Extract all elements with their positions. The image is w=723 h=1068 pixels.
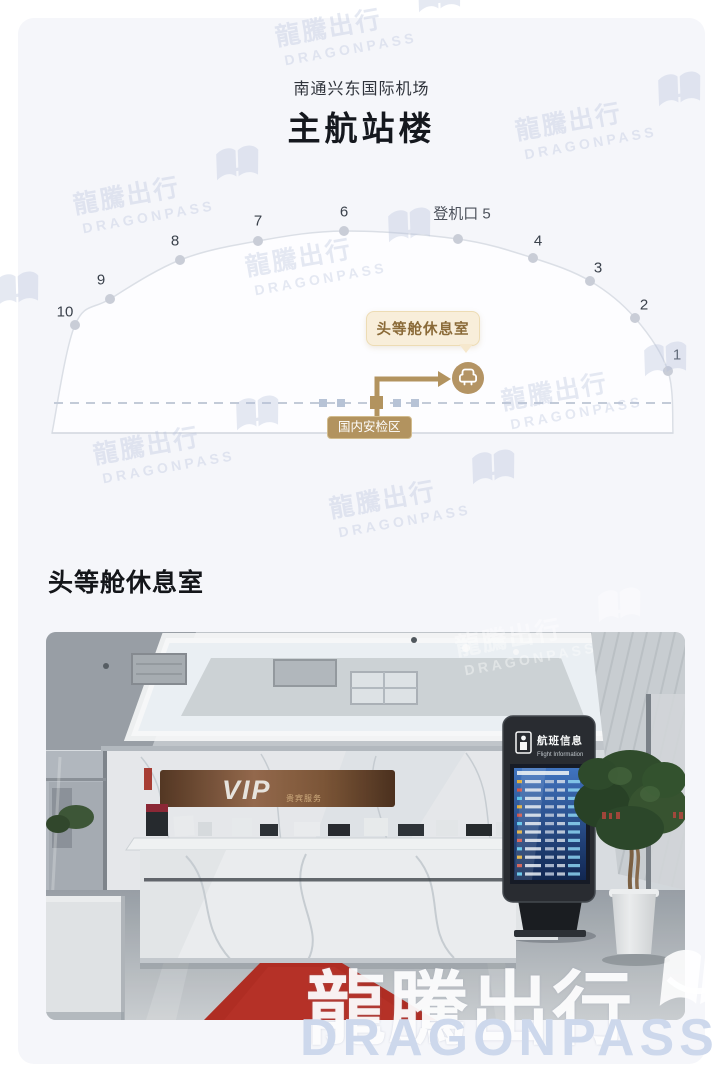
content-card: 南通兴东国际机场 主航站楼: [18, 18, 705, 1064]
gate-label-7: 7: [254, 213, 262, 230]
security-area-label: 国内安检区: [327, 416, 412, 439]
gate-label-1: 1: [673, 347, 681, 364]
lounge-tooltip-pointer: [459, 344, 473, 353]
lounge-tooltip: 头等舱休息室: [366, 311, 480, 346]
gate-label-2: 2: [640, 297, 648, 314]
dragonpass-logo-icon: [413, 0, 467, 26]
lounge-marker: [452, 362, 484, 394]
photo-tint: [46, 632, 685, 1020]
page-title-terminal: 主航站楼: [18, 102, 705, 150]
dragonpass-logo-icon: [593, 582, 647, 636]
brand-watermark: 龍騰出行 DRAGONPASS: [326, 456, 526, 541]
gate-label-8: 8: [171, 233, 179, 250]
gate-label-3: 3: [594, 260, 602, 277]
terminal-map: 登机口 5 1 2 3 4 6 7 8 9 10 头等舱休息室 国内安检区: [18, 193, 705, 463]
gate-label-9: 9: [97, 272, 105, 289]
gate-label-6: 6: [340, 204, 348, 221]
lounge-photo[interactable]: VIP 贵宾服务: [46, 632, 685, 1020]
gate-label-4: 4: [534, 233, 542, 250]
gate-label-10: 10: [57, 304, 74, 321]
gate-5-label: 登机口 5: [433, 203, 491, 224]
airport-name: 南通兴东国际机场: [18, 75, 705, 99]
lounge-photo-scene: VIP 贵宾服务: [46, 632, 685, 1020]
brand-watermark: 龍騰出行 DRAGONPASS: [272, 0, 472, 69]
section-title-lounge: 头等舱休息室: [48, 563, 204, 599]
